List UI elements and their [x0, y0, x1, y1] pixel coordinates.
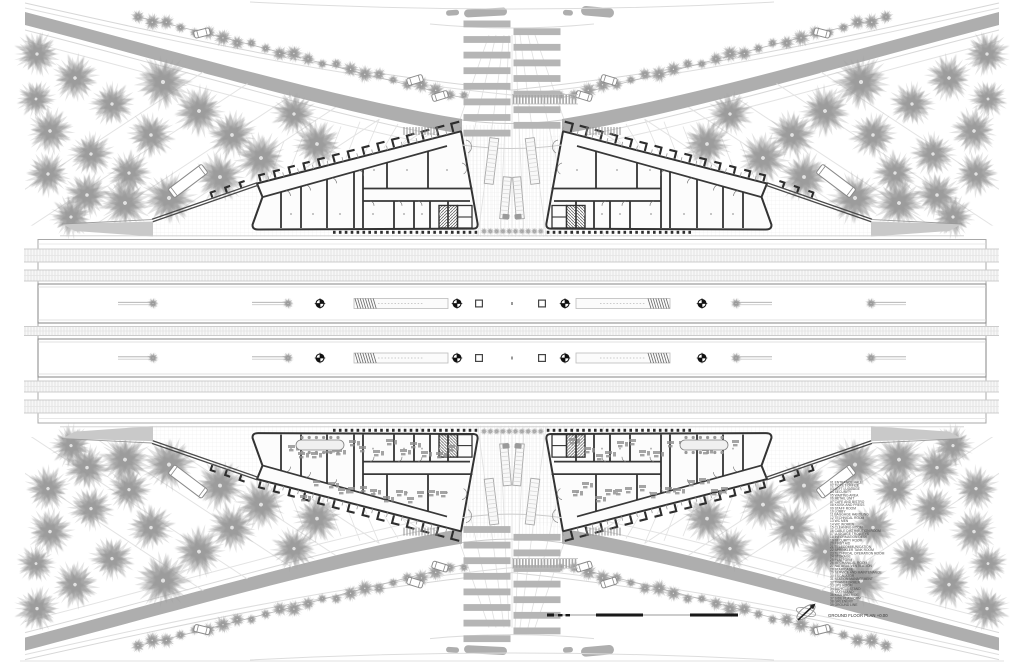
svg-text:39 GROUND LINE: 39 GROUND LINE — [830, 603, 858, 607]
svg-text:GROUND FLOOR PLAN +0.00: GROUND FLOOR PLAN +0.00 — [828, 613, 888, 618]
